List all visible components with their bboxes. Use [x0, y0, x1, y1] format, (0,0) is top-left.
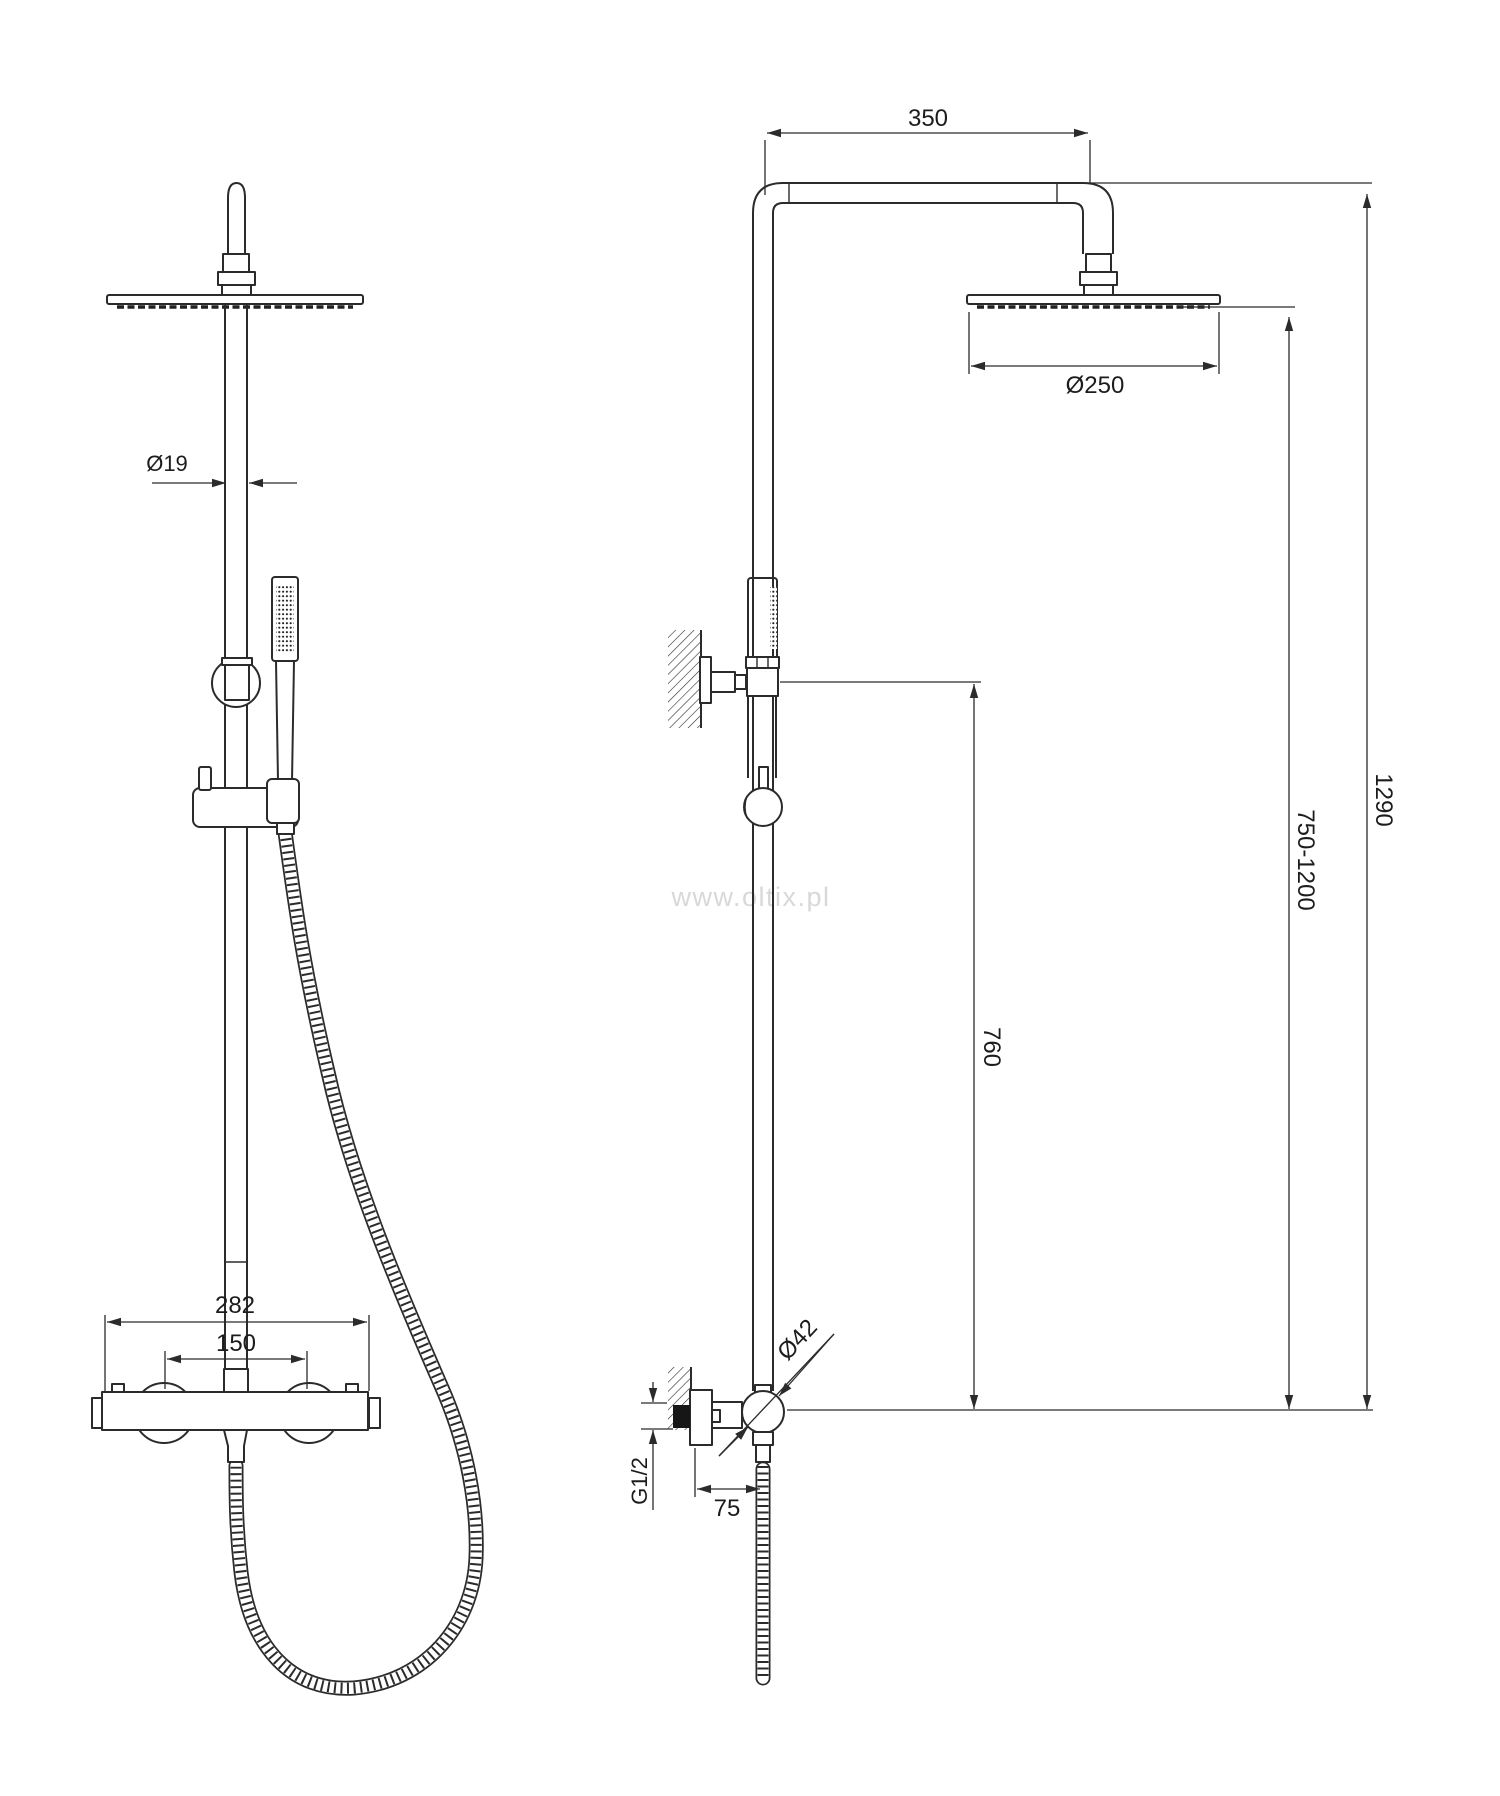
riser-column-side [753, 578, 773, 1391]
hand-shower-handle [276, 661, 294, 781]
shower-set-drawing: www.oltix.pl [0, 0, 1500, 1796]
elbow-body [742, 1391, 784, 1433]
hand-shower-spray-face [276, 586, 294, 652]
wall-offset-label: 75 [714, 1495, 741, 1522]
bracket-joint [735, 675, 746, 689]
inlet-spacing-label: 150 [216, 1330, 256, 1357]
thermostatic-mixer [92, 1369, 380, 1462]
elbow-hose-nut [753, 1432, 773, 1445]
dimension-total-height: 1290 [1367, 194, 1397, 1409]
bracket-escutcheon [700, 657, 711, 703]
pipe-diameter-label: Ø19 [146, 451, 188, 476]
bracket-arm [711, 672, 735, 692]
mixer-right-tab [346, 1384, 358, 1392]
hose-nut [277, 823, 294, 834]
arm-neck [1084, 285, 1113, 295]
dimension-wall-offset: 75 [697, 1489, 760, 1522]
reference-lines [695, 140, 1373, 1497]
bracket-clamp [747, 668, 778, 696]
arm-flange [1080, 272, 1117, 285]
technical-drawing-page: www.oltix.pl [0, 0, 1500, 1796]
dimension-riser-height-range: 750-1200 [1289, 317, 1319, 1409]
diverter-knob [744, 788, 782, 826]
hand-shower-cradle [267, 779, 299, 823]
pipe-flange [218, 272, 255, 285]
mixer-riser-stub [224, 1369, 248, 1392]
sleeve-and-diverter [744, 696, 782, 826]
bracket-height-label: 760 [978, 1027, 1005, 1067]
front-view: Ø19 282 150 [92, 183, 476, 1688]
dimension-arm-reach: 350 [767, 105, 1088, 133]
elbow-diameter-label: Ø42 [772, 1314, 823, 1366]
mixer-outlet [224, 1430, 247, 1462]
slider-lock-knob [199, 767, 211, 790]
outlet-escutcheon [690, 1390, 712, 1445]
overhead-pipe [228, 183, 245, 254]
diverter-stub [759, 767, 768, 790]
outlet-notch [712, 1410, 720, 1422]
riser-column [225, 304, 247, 1368]
pipe-neck [222, 285, 251, 295]
watermark: www.oltix.pl [670, 882, 830, 912]
thread-label: G1/2 [627, 1457, 652, 1505]
shower-head-disc-side [967, 295, 1220, 304]
total-height-label: 1290 [1370, 773, 1397, 826]
shower-head-disc [107, 295, 363, 304]
wall-hatch-top [668, 630, 701, 728]
arm-collar [1086, 254, 1111, 272]
dimension-thread: G1/2 [627, 1382, 673, 1510]
threaded-nipple [673, 1405, 690, 1428]
dimension-head-diameter: Ø250 [971, 366, 1217, 399]
hand-shower [272, 577, 298, 781]
mixer-right-cap [369, 1398, 380, 1428]
shower-arm [753, 183, 1113, 578]
mixer-body [102, 1392, 368, 1430]
elbow-hose-cone [756, 1445, 770, 1462]
dimension-bracket-height: 760 [974, 684, 1005, 1409]
hand-shower-spray-face-side2 [770, 587, 777, 649]
arm-reach-label: 350 [908, 105, 948, 132]
head-diameter-label: Ø250 [1066, 372, 1125, 399]
bracket-nut [746, 657, 779, 668]
dimension-pipe-diameter: Ø19 [146, 451, 297, 483]
pipe-collar [223, 254, 249, 272]
mixer-left-tab [112, 1384, 124, 1392]
dimension-elbow-diameter: Ø42 [719, 1314, 834, 1456]
wall-bracket-ring [212, 658, 260, 707]
riser-height-range-label: 750-1200 [1292, 809, 1319, 910]
shower-hose [236, 832, 476, 1688]
mixer-width-label: 282 [215, 1292, 255, 1319]
